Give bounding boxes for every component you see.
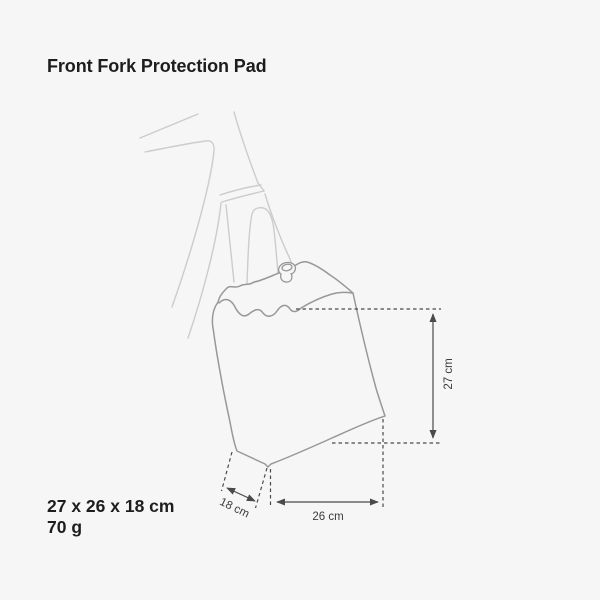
top-tube-and-downtube-line <box>145 141 214 307</box>
dimension-width-label: 26 cm <box>312 511 343 523</box>
depth-extension-left-dashed-line <box>222 452 233 491</box>
head-tube-line <box>234 112 264 191</box>
protection-pad <box>212 261 385 467</box>
pad-outline <box>212 262 385 467</box>
fork-leg-outer-left-line <box>226 205 234 282</box>
product-specs: 27 x 26 x 18 cm 70 g <box>47 496 174 539</box>
fork-leg-outer-right-line <box>265 194 291 267</box>
depth-extension-right-dashed-line <box>256 468 268 508</box>
product-weight-text: 70 g <box>47 517 174 538</box>
dimension-depth-label: 18 cm <box>218 496 251 521</box>
top-tube-upper-line <box>140 114 198 138</box>
product-dimensions-text: 27 x 26 x 18 cm <box>47 496 174 517</box>
dimension-height-label: 27 cm <box>443 358 455 389</box>
product-diagram-page: Front Fork Protection Pad <box>0 0 600 600</box>
